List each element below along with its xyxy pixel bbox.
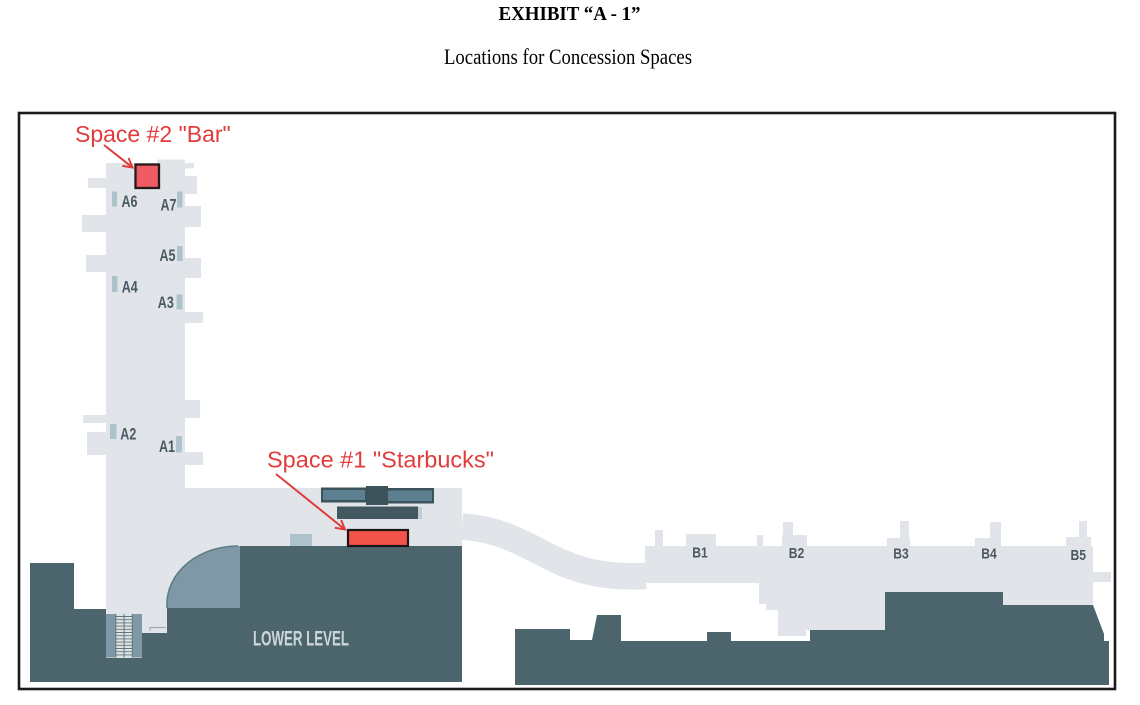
svg-text:B3: B3 [893,546,909,563]
svg-text:EXHIBIT “A - 1”: EXHIBIT “A - 1” [499,3,641,25]
svg-text:B2: B2 [789,545,805,562]
svg-text:LOWER LEVEL: LOWER LEVEL [253,628,349,651]
svg-text:Space #1 "Starbucks": Space #1 "Starbucks" [267,447,494,473]
svg-text:A6: A6 [122,192,138,211]
svg-text:B1: B1 [692,545,708,562]
svg-text:A1: A1 [159,437,175,456]
svg-text:B4: B4 [981,546,997,563]
svg-text:A5: A5 [160,246,176,265]
svg-text:A4: A4 [122,278,138,297]
svg-text:A7: A7 [161,196,177,215]
svg-text:Locations for Concession Space: Locations for Concession Spaces [444,44,692,69]
svg-text:A3: A3 [158,293,174,312]
svg-text:Space #2 "Bar": Space #2 "Bar" [75,121,231,147]
svg-text:B5: B5 [1071,547,1087,564]
svg-text:A2: A2 [120,425,136,444]
